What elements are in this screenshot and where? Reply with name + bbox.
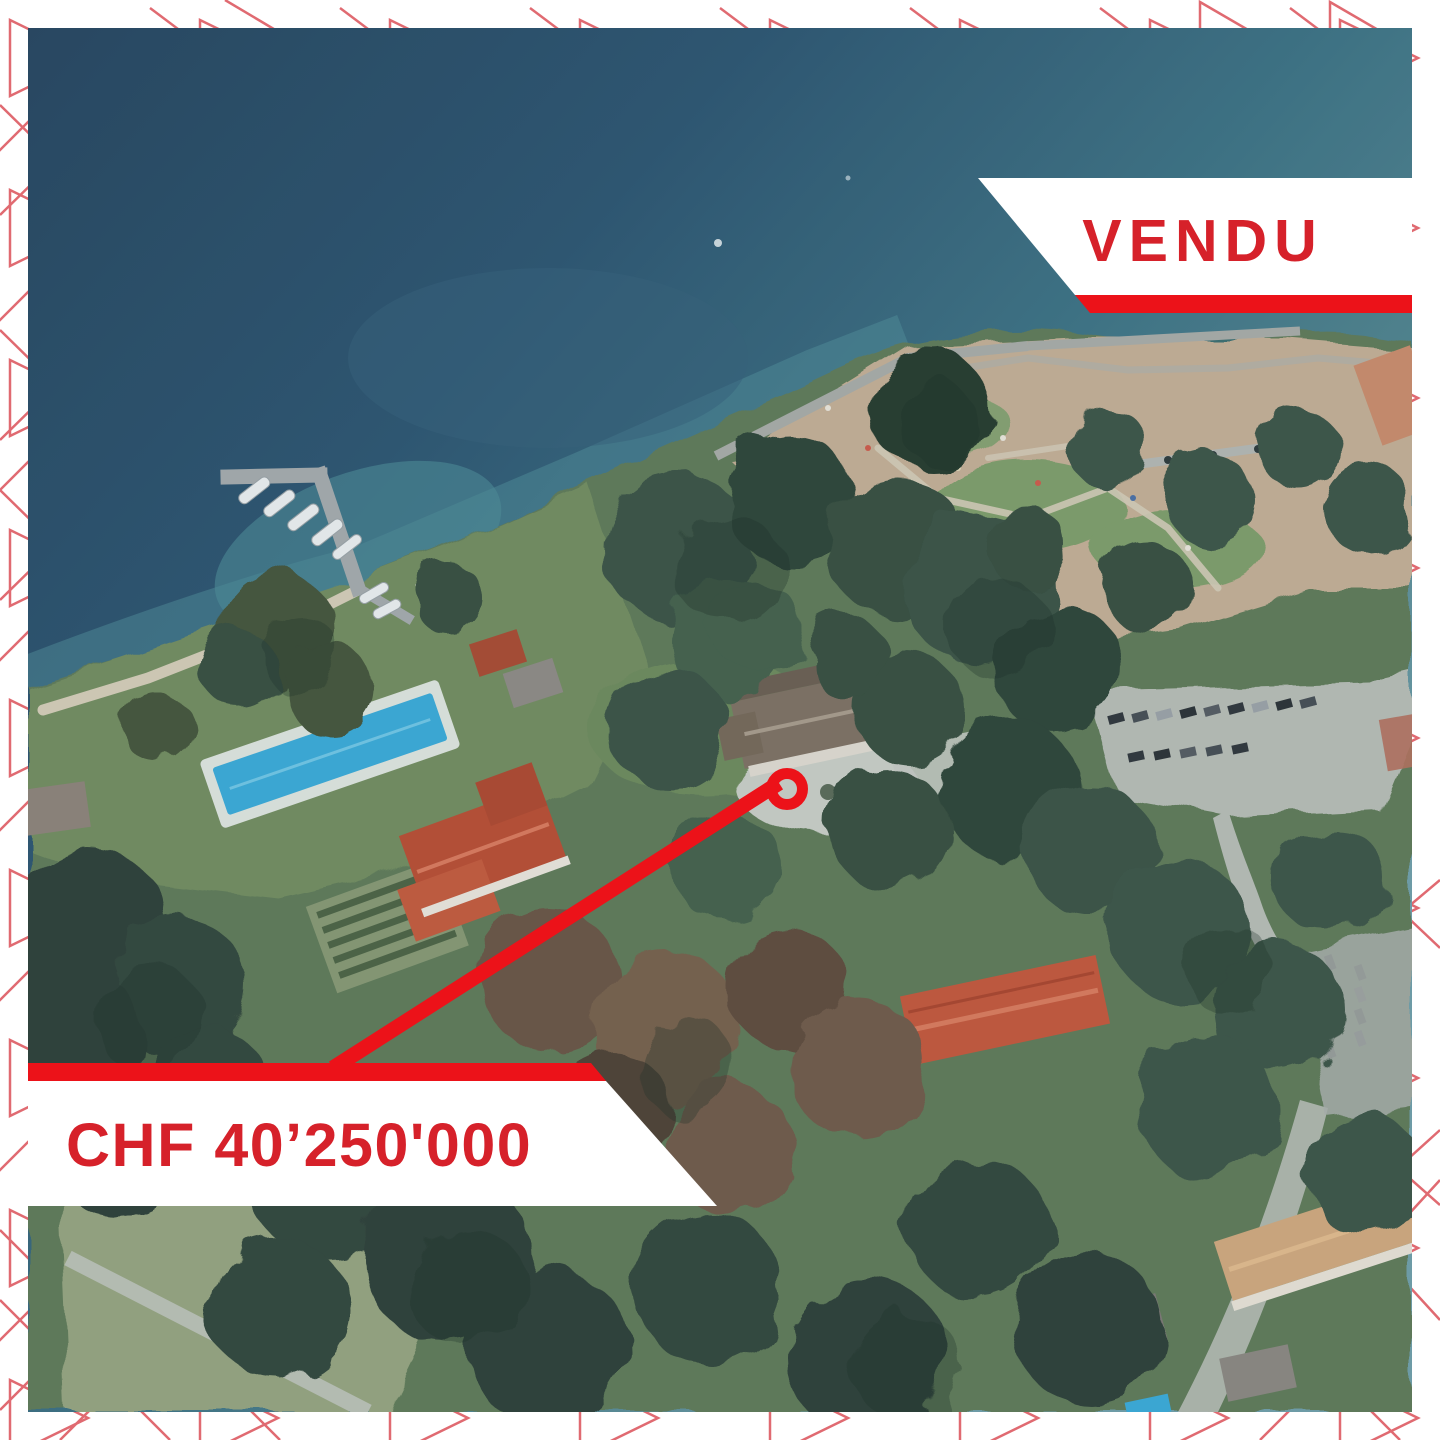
- price-label: CHF 40’250'000: [66, 1111, 532, 1179]
- social-media-post: VENDU CHF 40’250'000: [0, 0, 1440, 1440]
- status-label: VENDU: [1082, 208, 1324, 274]
- status-banner-underline: [1075, 295, 1412, 313]
- price-banner-topbar: [28, 1063, 606, 1081]
